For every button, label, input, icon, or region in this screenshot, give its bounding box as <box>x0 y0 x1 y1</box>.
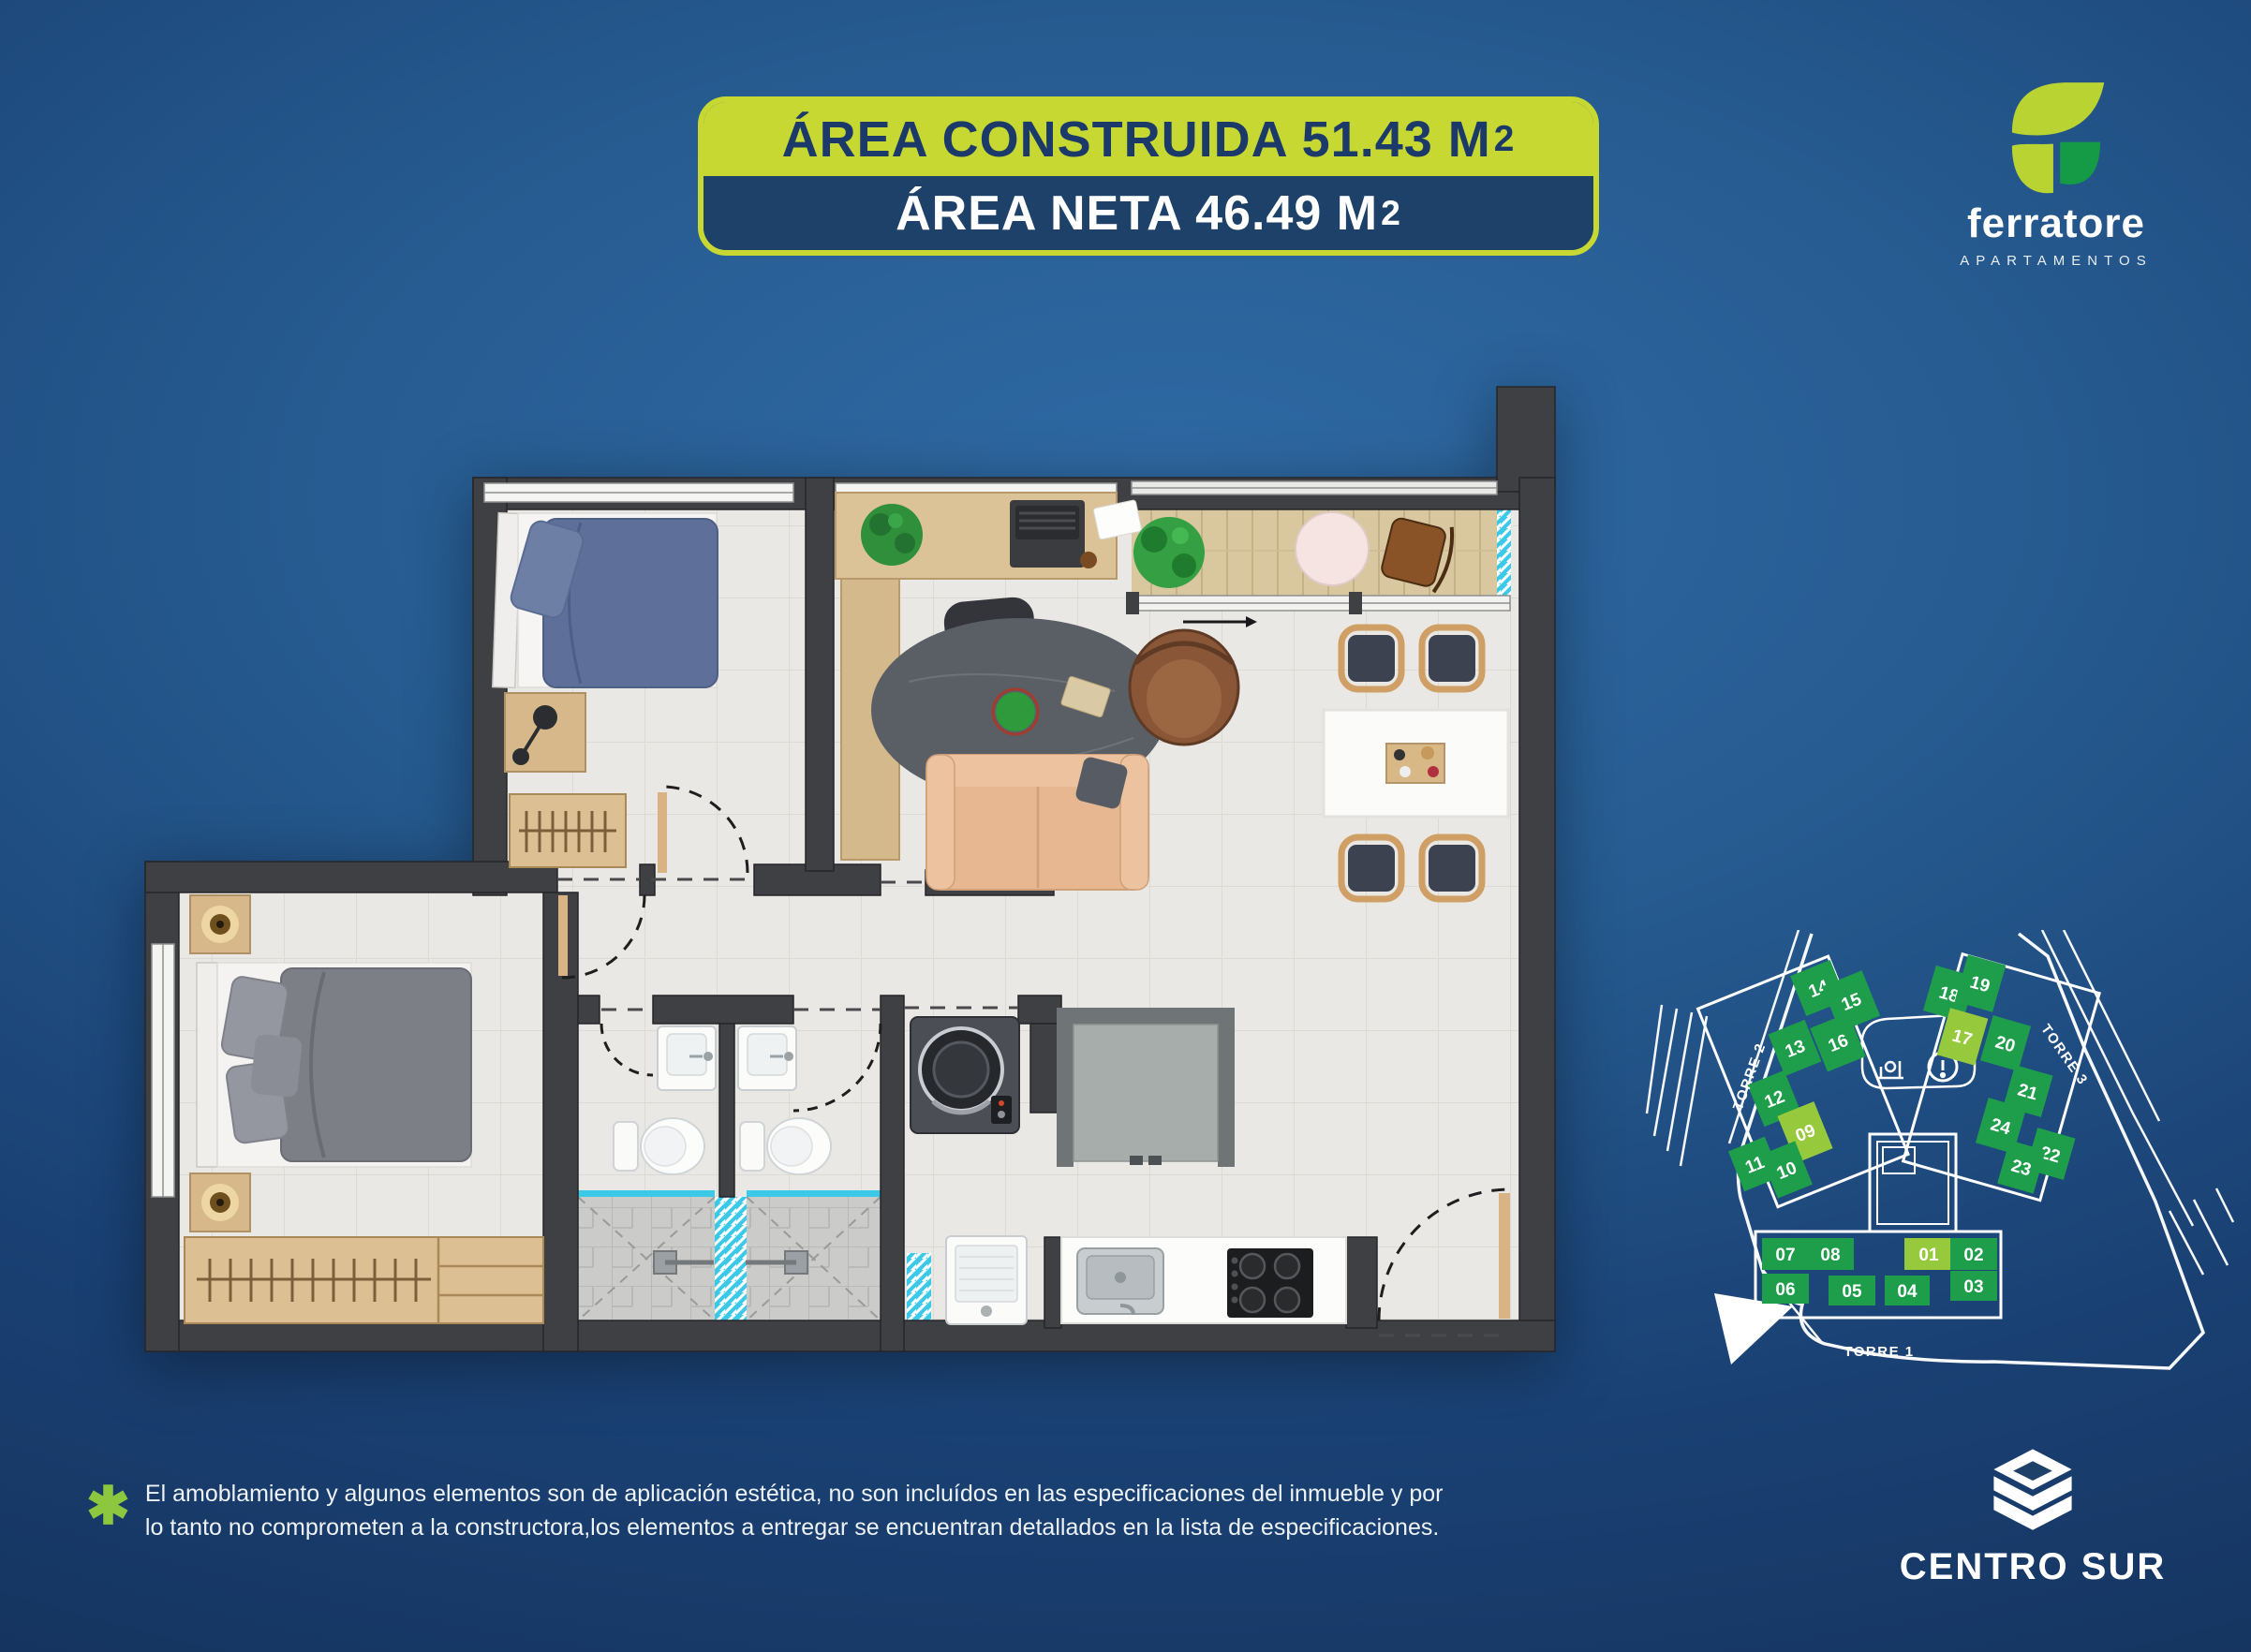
site-map-unit-04: 04 <box>1885 1276 1930 1305</box>
area-construida-text: ÁREA CONSTRUIDA 51.43 M <box>782 111 1491 169</box>
site-map-unit-01: 01 <box>1904 1238 1953 1270</box>
brand-tagline: APARTAMENTOS <box>1948 253 2164 269</box>
site-map-unit-19: 19 <box>1955 954 2007 1012</box>
kitchen-counter-island <box>1057 1008 1235 1167</box>
kitchen-sink <box>1077 1248 1163 1315</box>
site-map-units: 1415131612091110181917202124222307080102… <box>1728 954 2076 1305</box>
mug <box>1080 552 1097 568</box>
laundry-sink <box>946 1236 1027 1324</box>
site-map: 1415131612091110181917202124222307080102… <box>1645 930 2235 1370</box>
area-construida-label: ÁREA CONSTRUIDA 51.43 M2 <box>703 102 1593 176</box>
ferratore-logo: ferratore APARTAMENTOS <box>1948 77 2164 269</box>
m2-sub: 2 <box>1381 193 1401 233</box>
brand-name: ferratore <box>1948 200 2164 247</box>
svg-text:07: 07 <box>1775 1246 1795 1265</box>
footer-brand-name: CENTRO SUR <box>1892 1546 2173 1588</box>
balcony-table <box>1296 512 1369 585</box>
site-map-unit-20: 20 <box>1980 1015 2031 1071</box>
sofa <box>926 755 1148 890</box>
area-banner: ÁREA CONSTRUIDA 51.43 M2 ÁREA NETA 46.49… <box>698 96 1599 256</box>
site-triangle <box>1714 1293 1793 1364</box>
washer <box>911 1017 1019 1133</box>
disclaimer-line-1: El amoblamiento y algunos elementos son … <box>145 1478 1444 1512</box>
disclaimer: ✱ El amoblamiento y algunos elementos so… <box>86 1478 1510 1544</box>
area-neta-text: ÁREA NETA 46.49 M <box>896 185 1378 242</box>
disclaimer-line-2: lo tanto no comprometen a la constructor… <box>145 1512 1444 1545</box>
balcony-plant <box>1133 517 1205 588</box>
site-map-unit-03: 03 <box>1950 1271 1997 1301</box>
centro-sur-cube-icon <box>1988 1447 2078 1537</box>
svg-text:03: 03 <box>1963 1277 1983 1297</box>
site-map-unit-02: 02 <box>1950 1238 1997 1270</box>
svg-text:01: 01 <box>1918 1246 1939 1265</box>
stove <box>1227 1248 1313 1318</box>
toilet-2 <box>740 1118 831 1174</box>
svg-text:06: 06 <box>1775 1280 1795 1300</box>
m2-sub: 2 <box>1494 119 1516 160</box>
leather-armchair <box>1130 630 1238 745</box>
site-map-unit-06: 06 <box>1762 1274 1809 1304</box>
site-map-unit-08: 08 <box>1807 1238 1854 1270</box>
rug-plant <box>996 692 1035 731</box>
site-map-unit-07: 07 <box>1762 1238 1809 1270</box>
toilet-1 <box>614 1118 704 1174</box>
svg-text:04: 04 <box>1897 1282 1918 1302</box>
playground-icon <box>1877 1061 1903 1078</box>
apartment-floor-plan <box>141 382 1564 1356</box>
svg-text:02: 02 <box>1963 1246 1983 1265</box>
area-neta-label: ÁREA NETA 46.49 M2 <box>703 176 1593 250</box>
site-map-unit-05: 05 <box>1829 1276 1875 1305</box>
poster-background: ÁREA CONSTRUIDA 51.43 M2 ÁREA NETA 46.49… <box>0 0 2251 1652</box>
torre-label: TORRE 1 <box>1844 1344 1914 1360</box>
ferratore-leaf-icon <box>1996 77 2116 197</box>
desk-plant <box>861 504 923 566</box>
svg-text:05: 05 <box>1842 1282 1862 1302</box>
asterisk-icon: ✱ <box>86 1478 130 1534</box>
centro-sur-logo: CENTRO SUR <box>1892 1447 2173 1588</box>
tray <box>1386 744 1444 783</box>
svg-text:08: 08 <box>1820 1246 1840 1265</box>
